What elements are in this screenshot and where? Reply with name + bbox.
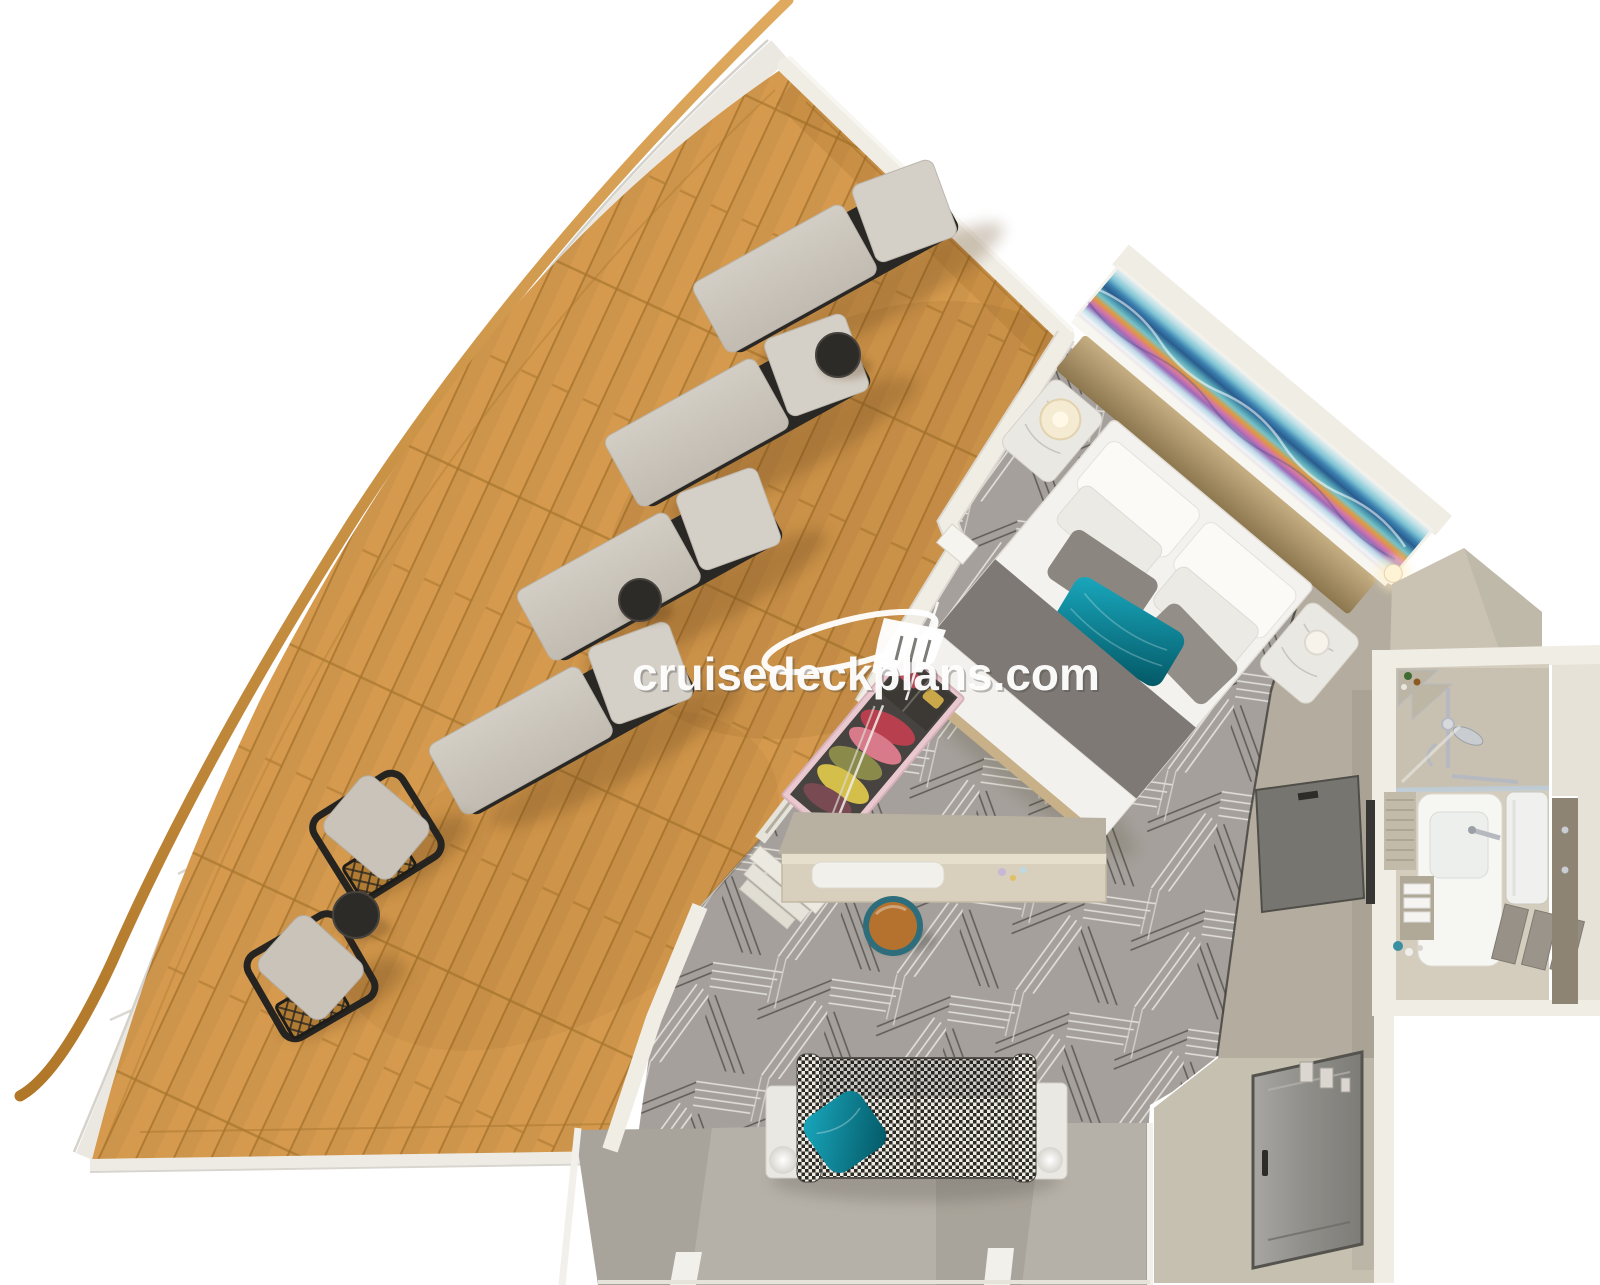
bath-mirror bbox=[1506, 792, 1548, 904]
globe-lamp-left bbox=[769, 1146, 797, 1174]
vanity-desk bbox=[782, 854, 1106, 902]
floorplan-scene: cruisedeckplans.com cruisedeckplans.com bbox=[0, 0, 1600, 1285]
wall-tv bbox=[1366, 800, 1375, 904]
cabin-floorplan-render: cruisedeckplans.com cruisedeckplans.com bbox=[0, 0, 1600, 1285]
sofa-armrest-right bbox=[1012, 1054, 1036, 1182]
bath-right-block-bottom bbox=[1578, 796, 1600, 1006]
deck-bottom-fascia bbox=[90, 1157, 612, 1165]
sitting-area bbox=[766, 1054, 1067, 1202]
desk-tray bbox=[812, 862, 944, 888]
shower-glass-partition bbox=[1396, 788, 1549, 790]
watermark-text: cruisedeckplans.com bbox=[632, 648, 1100, 700]
bathroom bbox=[1372, 548, 1600, 1016]
towel-shelf bbox=[1400, 876, 1434, 940]
louver-cabinet bbox=[1384, 792, 1416, 870]
sink-basin bbox=[1430, 812, 1488, 878]
bath-right-block-top bbox=[1552, 656, 1600, 796]
hallway-wall-band bbox=[1374, 1016, 1394, 1283]
entry-door-handle bbox=[1262, 1150, 1268, 1176]
dressing-floor-strip bbox=[778, 812, 1106, 854]
ledge-slot bbox=[984, 1248, 1014, 1285]
globe-lamp-right bbox=[1037, 1147, 1063, 1173]
bathroom-sliding-door bbox=[1256, 776, 1364, 912]
